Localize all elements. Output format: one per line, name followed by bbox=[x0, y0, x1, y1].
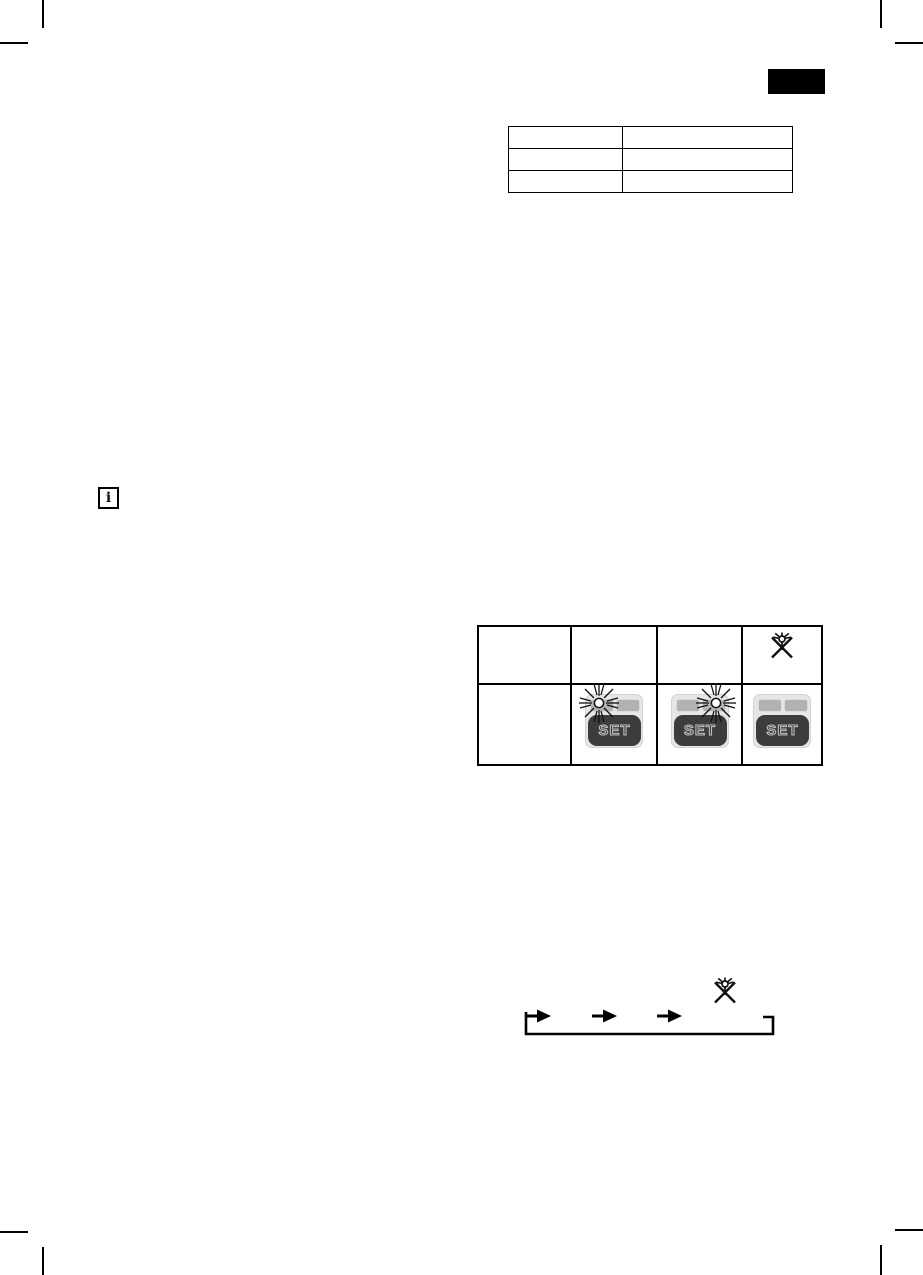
spec-table bbox=[508, 126, 793, 193]
led-blinking-crossed-icon bbox=[767, 631, 797, 659]
spec-table-row bbox=[509, 127, 793, 149]
set-table-cell: SET bbox=[743, 685, 821, 764]
crop-mark-top-right-vertical bbox=[880, 0, 882, 28]
set-control-panel: SET bbox=[753, 694, 811, 748]
spec-table-cell bbox=[623, 171, 793, 193]
indicator-light-left bbox=[590, 699, 614, 712]
set-indicator-table: SET SET bbox=[477, 625, 823, 766]
indicator-light-right bbox=[702, 699, 726, 712]
arrow-right-icon bbox=[526, 1010, 551, 1023]
spec-table-cell bbox=[623, 149, 793, 171]
crop-mark-bottom-right-vertical bbox=[880, 1245, 882, 1275]
spec-table-cell bbox=[509, 171, 623, 193]
crop-mark-top-left-horizontal bbox=[0, 42, 28, 44]
arrow-right-icon bbox=[592, 1010, 617, 1023]
spec-table-cell bbox=[623, 127, 793, 149]
set-table-header-cell bbox=[572, 627, 656, 683]
crop-mark-bottom-right-horizontal bbox=[895, 1229, 923, 1231]
manual-page: i SET bbox=[0, 0, 923, 1275]
set-button-label: SET bbox=[684, 722, 716, 739]
set-button-label: SET bbox=[766, 722, 798, 739]
indicator-light-left bbox=[758, 699, 782, 712]
set-table-header-cell bbox=[743, 627, 821, 683]
set-table-cell-empty bbox=[479, 685, 570, 764]
set-button: SET bbox=[674, 715, 727, 746]
set-table-header-cell bbox=[658, 627, 741, 683]
indicator-light-right bbox=[616, 699, 640, 712]
led-blinking-crossed-icon bbox=[715, 978, 735, 1003]
info-icon: i bbox=[98, 487, 119, 509]
set-table-cell: SET bbox=[572, 685, 656, 764]
set-table-header-cell bbox=[479, 627, 570, 683]
set-control-panel: SET bbox=[671, 694, 729, 748]
crop-mark-bottom-left-vertical bbox=[42, 1247, 44, 1275]
spec-table-row bbox=[509, 149, 793, 171]
cycle-loop-line bbox=[526, 1012, 773, 1034]
language-tab-marker bbox=[768, 69, 825, 94]
set-control-panel: SET bbox=[585, 694, 643, 748]
info-icon-letter: i bbox=[106, 491, 111, 505]
indicator-light-right bbox=[784, 699, 808, 712]
indicator-light-left bbox=[676, 699, 700, 712]
set-table-cell: SET bbox=[658, 685, 741, 764]
crop-mark-top-left-vertical bbox=[42, 0, 44, 28]
spec-table-cell bbox=[509, 127, 623, 149]
arrow-right-icon bbox=[657, 1010, 682, 1023]
set-cycle-diagram bbox=[508, 962, 798, 1047]
set-button: SET bbox=[588, 715, 641, 746]
crop-mark-top-right-horizontal bbox=[895, 42, 923, 44]
set-button-label: SET bbox=[598, 722, 630, 739]
spec-table-cell bbox=[509, 149, 623, 171]
crop-mark-bottom-left-horizontal bbox=[0, 1231, 28, 1233]
set-button: SET bbox=[756, 715, 809, 746]
spec-table-row bbox=[509, 171, 793, 193]
